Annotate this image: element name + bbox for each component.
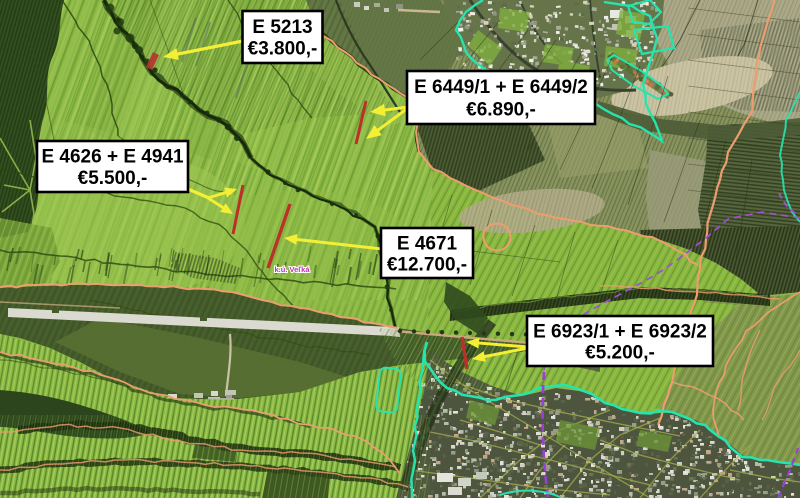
- svg-text:€5.200,-: €5.200,-: [585, 342, 655, 363]
- svg-text:E 5213: E 5213: [252, 17, 312, 38]
- svg-text:€5.500,-: €5.500,-: [78, 168, 148, 189]
- svg-text:€3.800,-: €3.800,-: [248, 39, 318, 60]
- svg-text:E 4626 + E 4941: E 4626 + E 4941: [41, 147, 184, 168]
- svg-text:k.ú. Veľká: k.ú. Veľká: [275, 265, 311, 274]
- svg-text:E 4671: E 4671: [397, 233, 458, 254]
- svg-text:€12.700,-: €12.700,-: [387, 254, 467, 275]
- svg-text:E 6449/1 + E 6449/2: E 6449/1 + E 6449/2: [414, 77, 588, 98]
- svg-text:€6.890,-: €6.890,-: [466, 99, 536, 120]
- svg-text:E 6923/1 + E 6923/2: E 6923/1 + E 6923/2: [533, 321, 707, 342]
